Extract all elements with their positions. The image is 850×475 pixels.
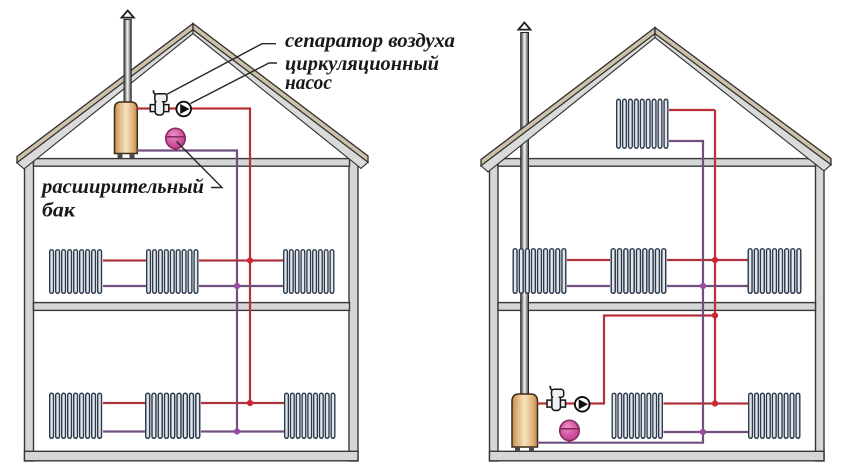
svg-text:бак: бак bbox=[42, 200, 76, 222]
svg-text:расширительный: расширительный bbox=[40, 176, 204, 198]
svg-text:насос: насос bbox=[285, 72, 332, 94]
svg-text:сепаратор воздуха: сепаратор воздуха bbox=[285, 30, 455, 52]
